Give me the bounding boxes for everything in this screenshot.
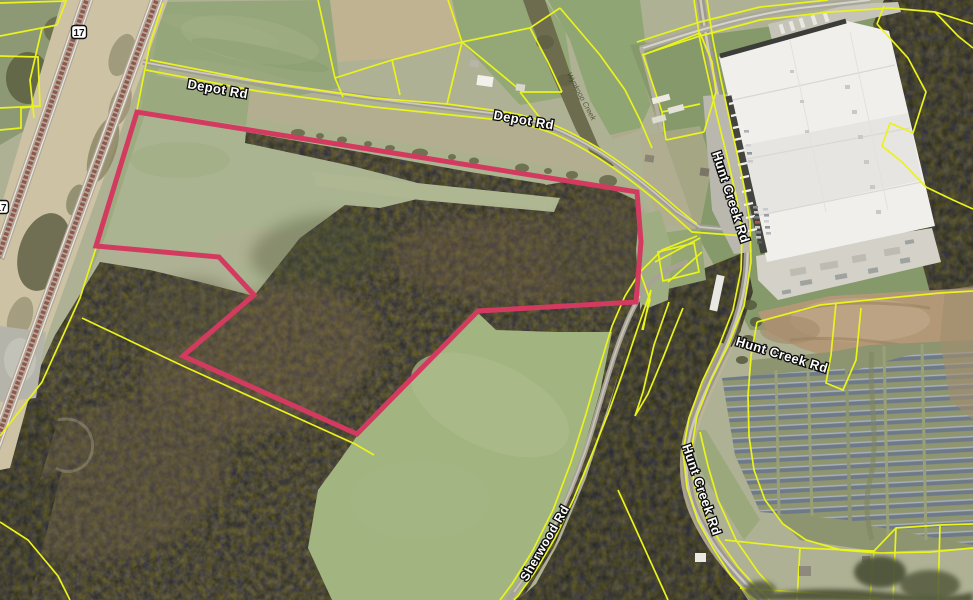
svg-text:17: 17 <box>73 28 85 39</box>
svg-text:17: 17 <box>0 203 7 214</box>
